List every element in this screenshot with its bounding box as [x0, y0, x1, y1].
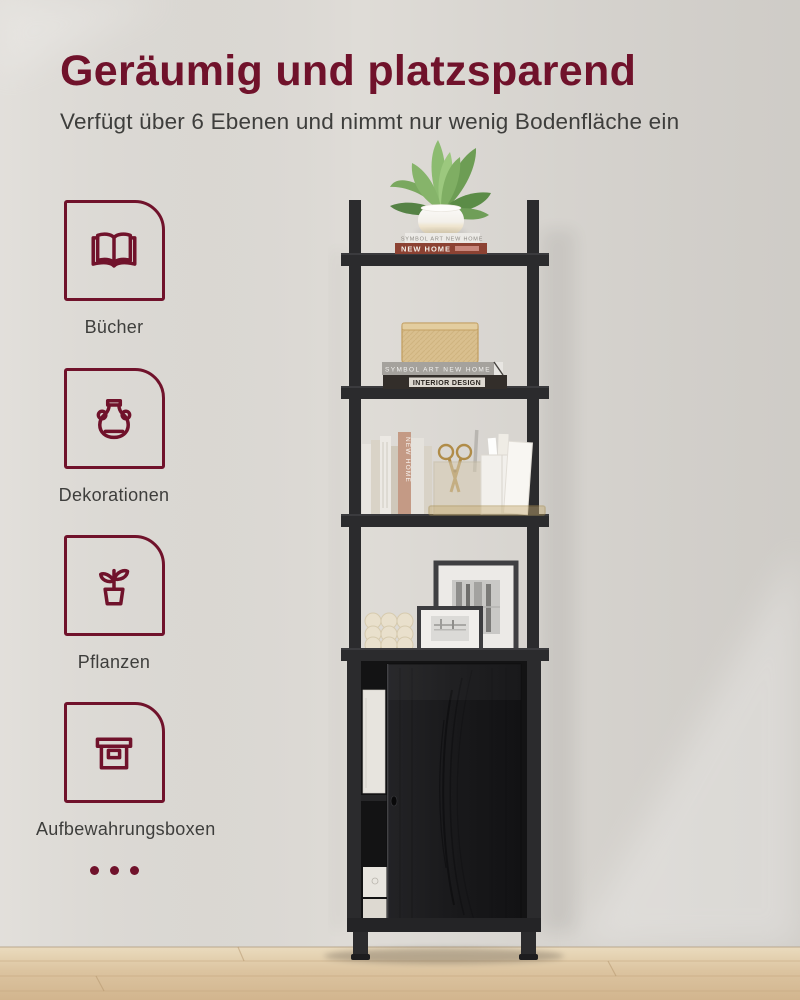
- feature-icon-box: [64, 702, 165, 803]
- more-dots: [36, 866, 192, 875]
- feature-label: Aufbewahrungsboxen: [36, 819, 192, 840]
- dot-icon: [130, 866, 139, 875]
- plant-pot: [418, 205, 464, 235]
- dot-icon: [110, 866, 119, 875]
- feature-label: Dekorationen: [36, 485, 192, 506]
- feature-icon-box: [64, 368, 165, 469]
- cabinet-door: [387, 664, 521, 925]
- shelf-right-post: [527, 200, 539, 648]
- feature-label: Pflanzen: [36, 652, 192, 673]
- rattan-basket: [402, 323, 478, 363]
- vase-icon: [86, 391, 142, 447]
- bubble-candle: [365, 613, 413, 653]
- shelf-left-post: [349, 200, 361, 648]
- feature-label: Bücher: [36, 317, 192, 338]
- feature-dekorationen: Dekorationen: [36, 368, 192, 506]
- open-book-icon: [86, 223, 142, 279]
- feature-pflanzen: Pflanzen: [36, 535, 192, 673]
- cabinet: [341, 648, 549, 960]
- stacked-books-level2: SYMBOL ART NEW HOME INTERIOR DESIGN: [382, 362, 507, 389]
- book-spine-text: NEW HOME: [401, 245, 451, 254]
- feature-aufbewahrungsboxen: Aufbewahrungsboxen: [36, 702, 192, 840]
- book-spine-text: SYMBOL ART NEW HOME: [401, 237, 483, 243]
- potted-plant-icon: [86, 558, 142, 614]
- feature-buecher: Bücher: [36, 200, 192, 338]
- page-subtitle: Verfügt über 6 Ebenen und nimmt nur weni…: [60, 109, 780, 135]
- book-spine-text: NEW HOME: [404, 437, 411, 483]
- storage-box-icon: [86, 725, 142, 781]
- feature-icon-box: [64, 535, 165, 636]
- book-spine-text: INTERIOR DESIGN: [413, 380, 481, 387]
- book-spine-text: SYMBOL ART NEW HOME: [385, 367, 491, 374]
- desk-organizer: [481, 434, 532, 515]
- feature-icon-box: [64, 200, 165, 301]
- dot-icon: [90, 866, 99, 875]
- product-infographic: SYMBOL ART NEW HOME NEW HOME SYMBOL ART …: [0, 0, 800, 1000]
- photo-frame-small: [419, 608, 481, 650]
- header: Geräumig und platzsparend Verfügt über 6…: [60, 48, 780, 135]
- gold-tray: [429, 506, 545, 515]
- page-title: Geräumig und platzsparend: [60, 48, 780, 95]
- door-handle: [391, 796, 397, 806]
- stacked-books-top: SYMBOL ART NEW HOME NEW HOME: [395, 233, 487, 254]
